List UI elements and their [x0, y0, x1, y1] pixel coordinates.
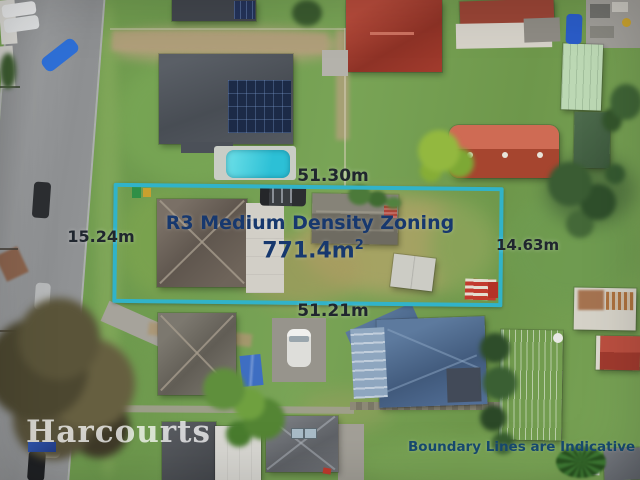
red-tile-roof-house — [346, 0, 442, 72]
yard-object — [622, 18, 631, 27]
shed — [322, 50, 348, 76]
large-tree — [18, 298, 100, 380]
dirt-driveway — [112, 31, 327, 54]
black-car — [27, 450, 46, 480]
rust-patch — [606, 292, 634, 310]
granny-flat-roof — [449, 125, 559, 178]
green-metal-roof — [561, 43, 603, 110]
bush — [292, 0, 322, 26]
solar-panels — [234, 1, 255, 19]
blue-roof-panels — [350, 327, 388, 399]
disclaimer-text: Boundary Lines are Indicative Only — [408, 439, 632, 455]
aerial-property-photo: 51.30m 15.24m 14.63m 51.21m R3 Medium De… — [0, 0, 640, 480]
blue-car — [565, 14, 582, 45]
van-windshield — [289, 336, 309, 342]
red-roof-shed — [596, 336, 640, 371]
label-left-length: 15.24m — [58, 227, 144, 246]
label-top-length: 51.30m — [287, 166, 379, 186]
white-flat-roof-building — [215, 426, 261, 480]
fence-line — [0, 330, 16, 332]
label-right-length: 14.63m — [496, 236, 588, 254]
hedge — [0, 53, 16, 89]
watermark: Harcourts — [26, 414, 211, 450]
shed — [590, 26, 614, 38]
rust-patch — [578, 290, 604, 310]
fence-line — [110, 28, 346, 30]
grey-roof — [524, 17, 561, 42]
tree-cluster — [203, 368, 245, 410]
tree-cluster — [548, 162, 592, 206]
tree — [610, 84, 640, 120]
roof-vent — [502, 152, 508, 158]
zoning-label: R3 Medium Density Zoning — [150, 212, 470, 234]
bright-tree — [418, 130, 460, 172]
shed — [590, 4, 610, 18]
tree-row — [480, 333, 510, 363]
shed — [612, 2, 628, 12]
fence-line — [0, 248, 18, 250]
area-value: 771.4m — [262, 238, 355, 263]
white-van — [287, 329, 311, 367]
area-exponent: 2 — [355, 238, 364, 253]
area-label: 771.4m2 — [238, 238, 388, 263]
dark-car — [32, 181, 51, 218]
roof-ridge — [370, 32, 414, 35]
driveway — [338, 424, 364, 480]
roof-ridge — [387, 328, 480, 369]
skylight — [291, 428, 304, 439]
solar-panel-array — [228, 80, 291, 133]
skylight — [304, 428, 317, 439]
house-roof — [266, 416, 338, 472]
roof-vent — [467, 152, 473, 158]
round-white-object — [553, 333, 563, 343]
label-bottom-length: 51.21m — [285, 301, 381, 321]
roof-shadow-section — [446, 367, 481, 402]
swimming-pool — [226, 150, 290, 178]
roof-vent — [537, 152, 543, 158]
yard-object — [323, 467, 332, 474]
dark-green-structure — [574, 112, 611, 169]
